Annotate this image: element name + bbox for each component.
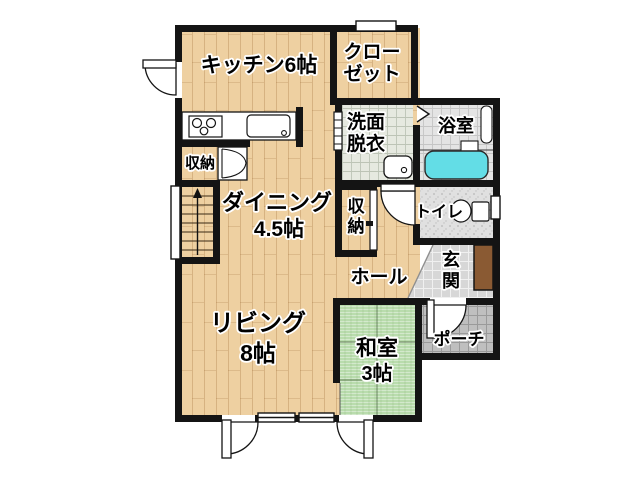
window xyxy=(171,186,180,259)
living-terrace-door-swing xyxy=(222,415,258,458)
window xyxy=(356,21,396,31)
storage-double-door xyxy=(218,147,247,180)
washbasin-icon xyxy=(384,156,412,178)
sink-icon xyxy=(247,115,290,137)
window xyxy=(299,413,334,422)
floor-plan-page: キッチン6帖 クロー ゼット 洗面 脱衣 浴室 収納 ダイニング 4.5帖 収 … xyxy=(0,0,640,480)
toilet-label: トイレ xyxy=(415,204,463,221)
storage-kitchen-label: 収納 xyxy=(185,154,215,172)
kitchen-counter xyxy=(182,112,296,140)
washroom-label-1: 洗面 xyxy=(347,110,385,133)
kitchen-label: キッチン6帖 xyxy=(201,54,318,77)
porch-label: ポーチ xyxy=(434,329,485,349)
washitsu-label-1: 和室 xyxy=(356,336,398,360)
storage-hall-label-1: 収 xyxy=(348,197,366,216)
bathroom-label: 浴室 xyxy=(438,115,474,136)
window xyxy=(491,196,500,219)
washroom-label-2: 脱衣 xyxy=(347,132,385,155)
washitsu-label-2: 3帖 xyxy=(361,362,392,385)
kitchen-back-door-swing xyxy=(143,60,182,98)
washroom-sliding-door xyxy=(334,112,342,150)
washitsu-terrace-door-swing xyxy=(337,415,373,458)
dining-label-1: ダイニング xyxy=(222,190,332,215)
entrance-label-1: 玄 xyxy=(442,249,460,270)
entrance-label-2: 関 xyxy=(442,271,460,291)
stove-icon xyxy=(189,116,222,137)
living-label-1: リビング xyxy=(210,310,306,337)
living-label-2: 8帖 xyxy=(240,340,276,366)
dining-label-2: 4.5帖 xyxy=(254,218,304,241)
shoe-cabinet xyxy=(474,245,493,290)
window xyxy=(258,413,295,422)
closet-label-2: ゼット xyxy=(343,62,400,85)
floor-plan-svg: キッチン6帖 クロー ゼット 洗面 脱衣 浴室 収納 ダイニング 4.5帖 収 … xyxy=(0,0,640,480)
storage-hall-label-2: 納 xyxy=(348,216,365,236)
bath-counter xyxy=(481,106,492,143)
closet-label-1: クロー xyxy=(343,41,400,63)
hall-label: ホール xyxy=(350,267,407,288)
